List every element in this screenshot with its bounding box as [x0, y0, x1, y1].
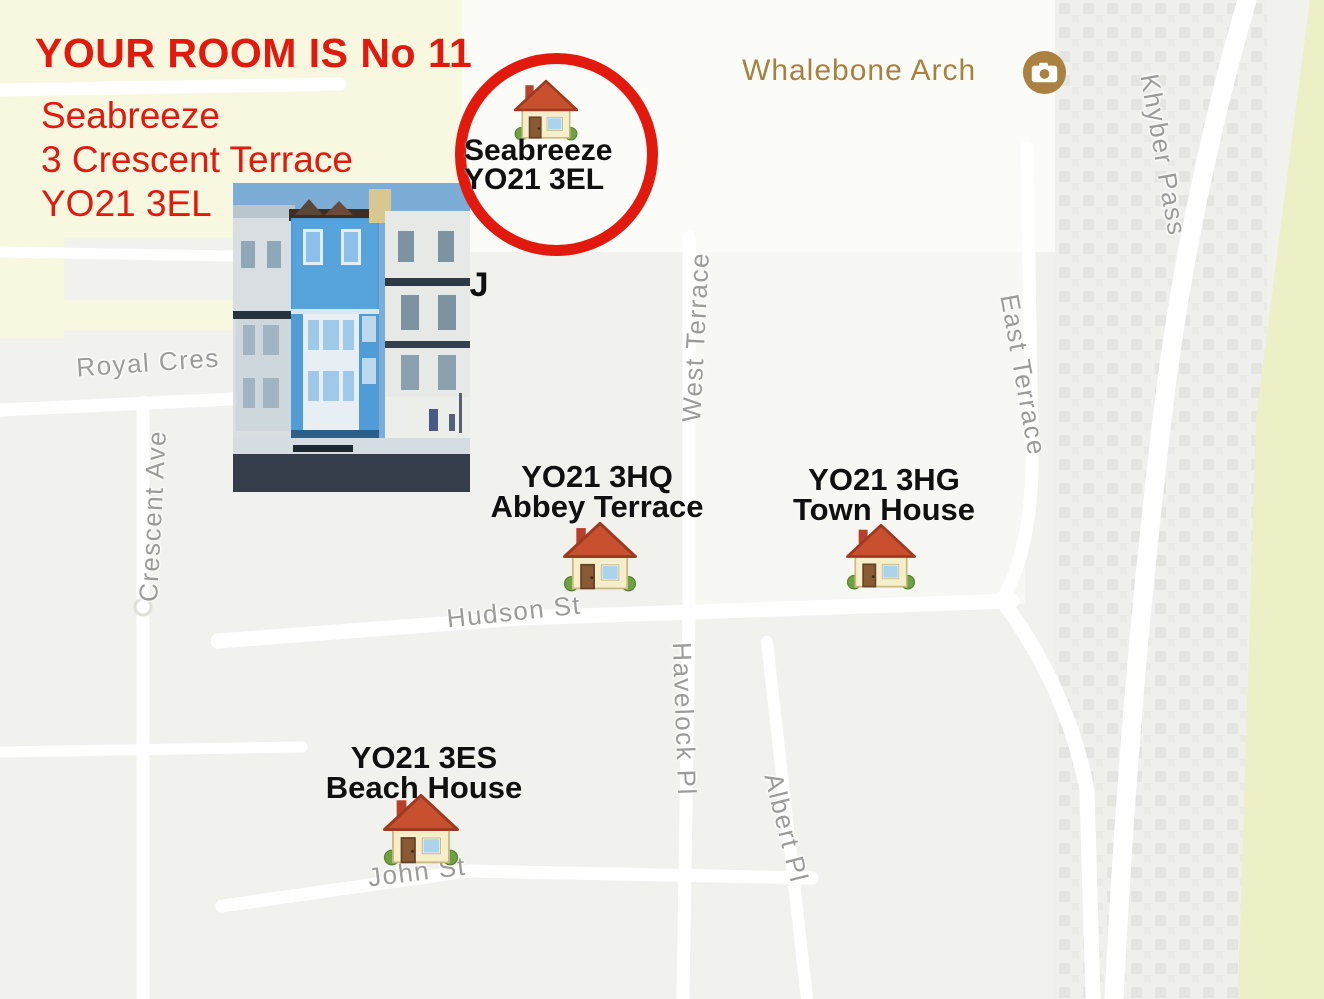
road-crescent-terrace [0, 252, 232, 256]
marker-label-seabreeze: Seabreeze YO21 3EL [464, 136, 612, 194]
road-left-mid [0, 747, 302, 752]
house-icon [513, 79, 579, 141]
marker-town-name: Town House [793, 495, 975, 525]
marker-beach-postcode: YO21 3ES [326, 743, 522, 773]
yellow-band-left [0, 300, 238, 330]
guesthouse-photo [233, 183, 470, 492]
room-title: YOUR ROOM IS No 11 [35, 30, 472, 77]
address-block: Seabreeze 3 Crescent Terrace YO21 3EL [41, 94, 353, 226]
house-icon [562, 521, 638, 592]
street-label-havelock-pl: Havelock Pl [666, 642, 702, 797]
marker-label-abbey-terrace: YO21 3HQ Abbey Terrace [490, 462, 703, 522]
address-line-1: Seabreeze [41, 94, 353, 138]
address-line-3: YO21 3EL [41, 182, 353, 226]
marker-label-town-house: YO21 3HG Town House [793, 465, 975, 525]
marker-abbey-postcode: YO21 3HQ [490, 462, 703, 492]
house-icon [382, 793, 460, 866]
camera-icon[interactable] [1021, 49, 1068, 96]
marker-abbey-name: Abbey Terrace [490, 492, 703, 522]
marker-seabreeze-postcode: YO21 3EL [464, 165, 612, 194]
road-north [0, 84, 340, 90]
annotated-map: Royal Cres Crescent Ave West Terrace Eas… [0, 0, 1324, 999]
marker-seabreeze-name: Seabreeze [464, 136, 612, 165]
house-icon [845, 523, 917, 590]
poi-label-whalebone-arch: Whalebone Arch [742, 54, 976, 88]
marker-town-postcode: YO21 3HG [793, 465, 975, 495]
address-line-2: 3 Crescent Terrace [41, 138, 353, 182]
